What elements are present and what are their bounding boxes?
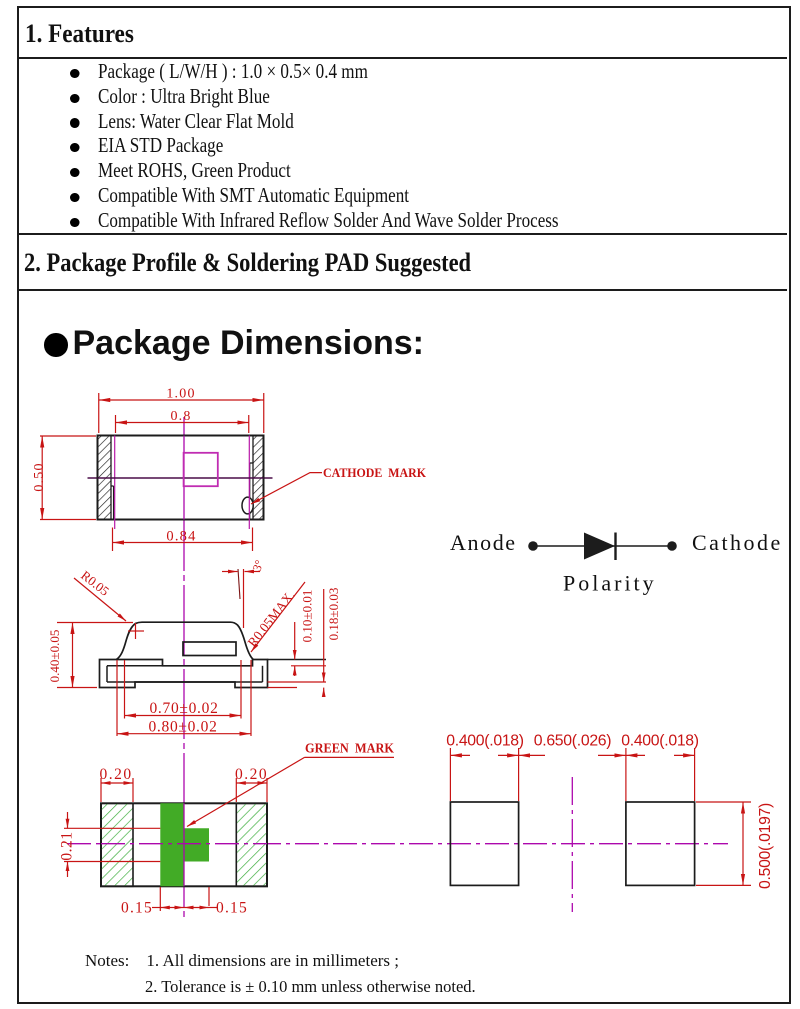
svg-text:R0.05: R0.05 xyxy=(78,568,112,599)
svg-text:0.400(.018): 0.400(.018) xyxy=(446,733,524,750)
svg-text:Cathode: Cathode xyxy=(692,530,783,555)
svg-text:0.8: 0.8 xyxy=(170,409,191,424)
svg-text:Polarity: Polarity xyxy=(563,571,657,596)
svg-text:0.21: 0.21 xyxy=(59,831,76,860)
svg-text:CATHODE MARK: CATHODE MARK xyxy=(323,465,427,480)
svg-text:0.40±0.05: 0.40±0.05 xyxy=(47,630,62,683)
svg-text:0.10±0.01: 0.10±0.01 xyxy=(300,590,315,643)
svg-text:1.00: 1.00 xyxy=(166,387,195,402)
svg-text:0.15: 0.15 xyxy=(121,900,153,917)
svg-text:Anode: Anode xyxy=(450,530,517,555)
svg-text:0.20: 0.20 xyxy=(235,766,268,783)
svg-text:0.500(.0197): 0.500(.0197) xyxy=(757,803,774,889)
svg-text:0.15: 0.15 xyxy=(216,900,248,917)
svg-text:0.80±0.02: 0.80±0.02 xyxy=(148,719,217,736)
svg-text:0.18±0.03: 0.18±0.03 xyxy=(326,588,341,641)
svg-text:0.650(.026): 0.650(.026) xyxy=(534,733,612,750)
svg-text:0.20: 0.20 xyxy=(99,766,132,783)
svg-text:GREEN MARK: GREEN MARK xyxy=(305,740,395,755)
svg-text:R0.05MAX.: R0.05MAX. xyxy=(245,587,298,649)
svg-text:0.70±0.02: 0.70±0.02 xyxy=(149,700,218,717)
svg-text:0.84: 0.84 xyxy=(166,529,196,545)
svg-text:0.400(.018): 0.400(.018) xyxy=(621,733,699,750)
svg-text:0.50: 0.50 xyxy=(32,462,47,491)
svg-text:3°: 3° xyxy=(250,558,267,573)
